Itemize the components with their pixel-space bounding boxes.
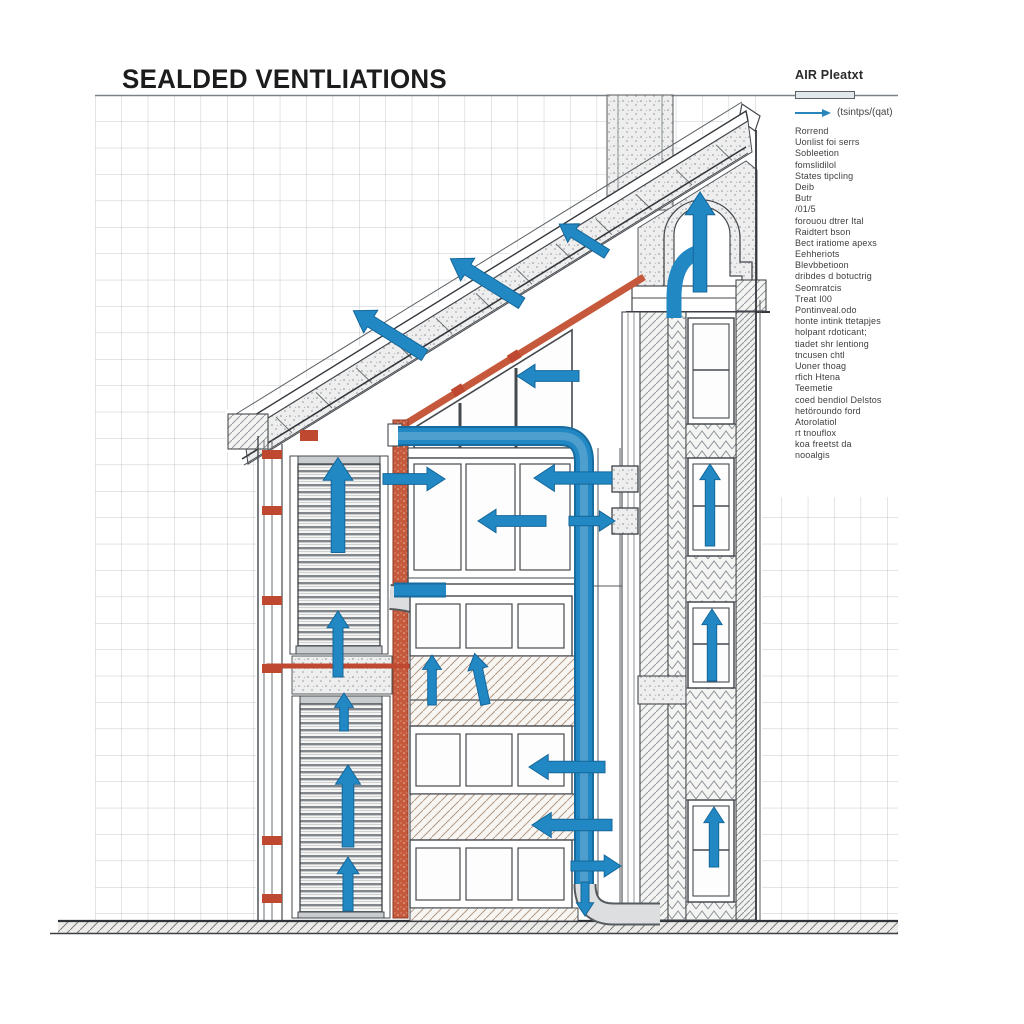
legend-item: Deib [795,182,1015,193]
legend-item: Uonlist foi serrs [795,137,1015,148]
legend-item: Sobleetion [795,148,1015,159]
legend-item: Seomratcis [795,283,1015,294]
legend-item: hetöroundo ford [795,406,1015,417]
legend-item: tiadet shr lentiong [795,339,1015,350]
legend-item: Raidtert bson [795,227,1015,238]
legend-item: forouou dtrer Ital [795,216,1015,227]
legend-item: Teemetie [795,383,1015,394]
legend-item: holpant rdoticant; [795,327,1015,338]
legend-item: /01/5 [795,204,1015,215]
legend-item-list: RorrendUonlist foi serrsSobleetionfomsli… [795,126,1015,462]
legend-arrow-row: (tsintps/(qat) [795,107,1015,118]
legend-item: Uoner thoag [795,361,1015,372]
eave-bracket-right [736,280,766,311]
legend-panel: AIR Pleatxt (tsintps/(qat) RorrendUonlis… [795,68,1015,462]
legend-item: States tipcling [795,171,1015,182]
spandrel-band-2 [410,794,578,840]
legend-item: fomslidilol [795,160,1015,171]
floor5-window-row [410,840,572,908]
legend-item: Rorrend [795,126,1015,137]
shaft-wall-chevron [668,312,686,920]
legend-item: rt tnouflox [795,428,1015,439]
duct-section-bar-icon [795,91,855,99]
legend-header: AIR Pleatxt [795,68,1015,82]
legend-item: Treat I00 [795,294,1015,305]
duct-chase [622,312,640,920]
legend-item: coed bendiol Delstos [795,395,1015,406]
legend-item: tncusen chtl [795,350,1015,361]
floor3-window-row [410,596,572,656]
shaft-wall-outer [736,312,756,920]
legend-item: nooalgis [795,450,1015,461]
legend-item: Eehheriots [795,249,1015,260]
base-strip [410,908,578,921]
legend-item: Butr [795,193,1015,204]
legend-item: honte intink ttetapjes [795,316,1015,327]
legend-item: Pontinveal.odo [795,305,1015,316]
legend-item: rfich Htena [795,372,1015,383]
legend-item: dribdes d botuctrig [795,271,1015,282]
shaft-wall-inner [640,312,668,920]
legend-item: koa freetst da [795,439,1015,450]
eave-bracket-left [228,414,268,449]
blueprint-page: SEALDED VENTLIATIONS AIR Pleatxt (tsintp… [0,0,1024,1024]
legend-arrow-label: (tsintps/(qat) [837,107,893,118]
legend-item: Bect iratiome apexs [795,238,1015,249]
ground-line [50,921,898,934]
vent-box-1 [612,466,638,492]
legend-item: Blevbbetioon [795,260,1015,271]
sill [408,448,578,458]
airflow-arrow-icon [795,108,831,118]
slab-block [638,676,692,704]
page-title: SEALDED VENTLIATIONS [122,64,447,95]
legend-item: Atorolatiol [795,417,1015,428]
bay-window-1 [688,318,734,424]
